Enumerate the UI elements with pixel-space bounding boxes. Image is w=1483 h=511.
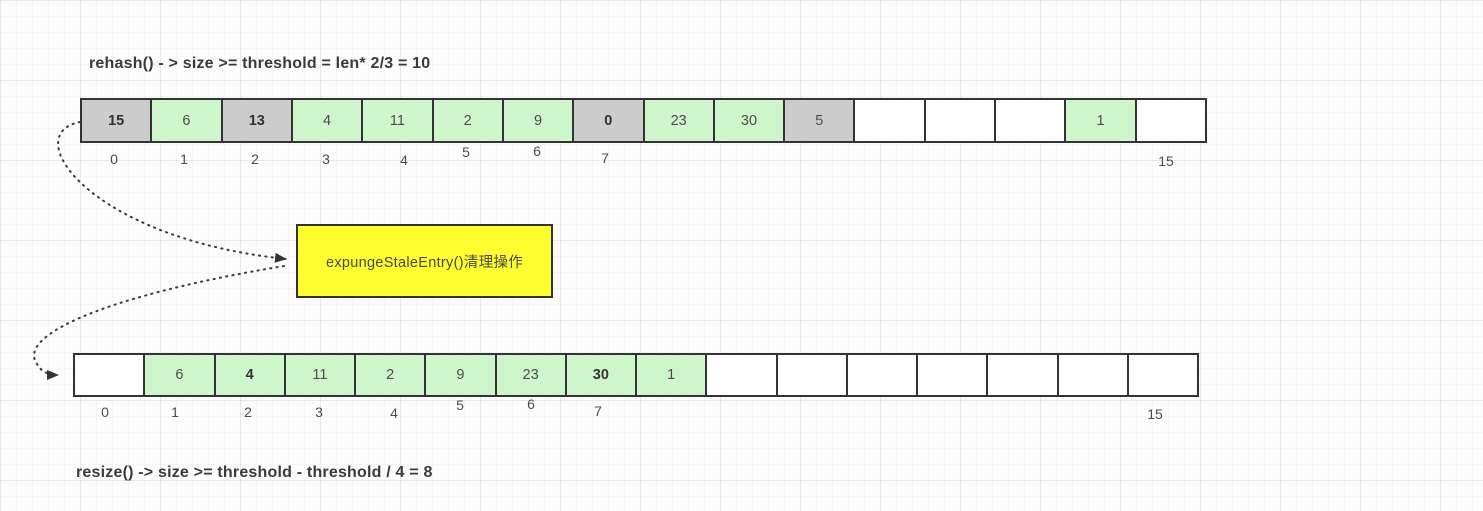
index-label: 7 [601,150,609,166]
array-cell: 1 [635,353,707,397]
array-cell [986,353,1058,397]
array-cell: 23 [643,98,715,143]
array-cell [1127,353,1199,397]
array-cell: 23 [495,353,567,397]
index-label: 3 [315,404,323,420]
array-cell: 2 [432,98,504,143]
array-cell: 2 [354,353,426,397]
index-label: 0 [110,151,118,167]
array-cell: 4 [214,353,286,397]
array-cell: 4 [291,98,363,143]
index-label: 4 [390,405,398,421]
expunge-note-box: expungeStaleEntry()清理操作 [296,224,553,298]
array-cell: 11 [361,98,433,143]
array-cell [846,353,918,397]
array-cell: 9 [424,353,496,397]
array-cell: 6 [143,353,215,397]
index-label: 7 [594,403,602,419]
resize-title: resize() -> size >= threshold - threshol… [76,464,433,482]
index-label: 15 [1158,153,1174,169]
diagram-canvas: rehash() - > size >= threshold = len* 2/… [0,0,1483,511]
index-label: 1 [171,404,179,420]
index-label: 0 [101,404,109,420]
hashtable-after-array: 6 4 11 2 9 23 30 1 [73,353,1199,397]
index-label: 4 [400,152,408,168]
array-cell: 0 [572,98,644,143]
array-cell [73,353,145,397]
array-cell: 30 [713,98,785,143]
connector-arrows [0,0,1483,511]
array-cell [1135,98,1207,143]
array-cell: 1 [1064,98,1136,143]
index-label: 5 [456,397,464,413]
rehash-title: rehash() - > size >= threshold = len* 2/… [89,55,430,73]
index-label: 2 [244,404,252,420]
index-label: 6 [527,396,535,412]
array-cell: 30 [565,353,637,397]
array-cell: 11 [284,353,356,397]
array-cell: 15 [80,98,152,143]
array-cell: 13 [221,98,293,143]
array-cell: 6 [150,98,222,143]
array-cell [916,353,988,397]
index-label: 5 [462,144,470,160]
array-cell [924,98,996,143]
hashtable-before-array: 15 6 13 4 11 2 9 0 23 30 5 1 [80,98,1207,143]
index-label: 3 [322,151,330,167]
array-cell [776,353,848,397]
array-cell [705,353,777,397]
array-cell [1057,353,1129,397]
index-label: 2 [251,151,259,167]
array-cell: 9 [502,98,574,143]
array-cell [994,98,1066,143]
array-cell: 5 [783,98,855,143]
index-label: 15 [1147,406,1163,422]
index-label: 6 [533,143,541,159]
array-cell [853,98,925,143]
index-label: 1 [180,151,188,167]
